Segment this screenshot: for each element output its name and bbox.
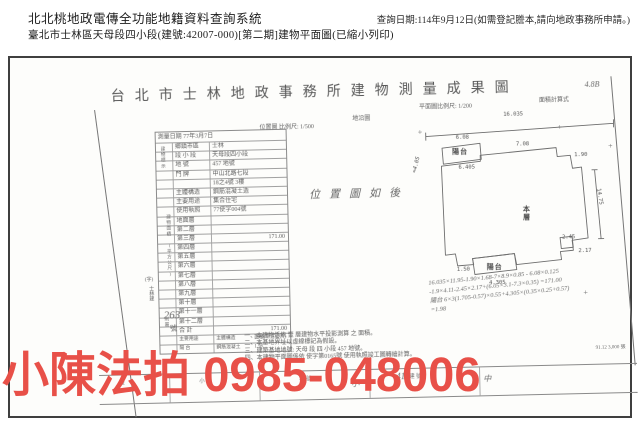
dim-bottom-left: 1.50: [457, 267, 470, 273]
receipt-suffix: 號: [170, 323, 177, 333]
plan-center-label: 本層: [521, 205, 532, 229]
sheet-note: 地沿圖: [352, 113, 370, 122]
registration-mark: +: [608, 141, 613, 150]
handwritten-corner-note: 4.8B: [585, 80, 600, 89]
receipt-office: 士林建: [147, 286, 155, 312]
balcony-top-label: 陽台: [452, 147, 468, 157]
receipt-prefix: (字): [145, 276, 154, 283]
receipt-number: 263: [164, 309, 181, 321]
plan-scale: 平面圖比例尺: 1/200: [419, 101, 472, 111]
dim-top-right: 1.90: [574, 152, 587, 158]
dim-balcony-top: 6.08: [456, 135, 469, 141]
dim-balcony-top-inner: 6.405: [458, 164, 475, 170]
balcony-bottom-label: 陽台: [487, 262, 503, 272]
plan-top-dimension-line: [425, 119, 613, 140]
system-title: 北北桃地政電傳全功能地籍資料查詢系統: [28, 8, 262, 27]
print-code: 91.12 3,000 張: [595, 343, 625, 351]
subject-line: 臺北市士林區天母段四小段(建號:42007-000)[第二期]建物平面圖(已縮小…: [28, 27, 394, 42]
area-calc-label: 面積計算式: [539, 94, 569, 104]
dim-top-mid: 7.08: [516, 141, 529, 147]
dim-top: 16.035: [503, 111, 523, 117]
group-label-building: 建物標示: [159, 146, 168, 206]
registration-mark: +: [418, 128, 423, 137]
location-note: 位置圖如後: [309, 184, 409, 202]
registration-mark: +: [557, 122, 562, 131]
group-label-area: 建物面積 (平方公尺): [158, 214, 174, 306]
dim-notch-b: 2.17: [578, 248, 591, 254]
query-date: 查詢日期:114年9月12日(如需登記謄本,請向地政事務所申請。): [377, 12, 630, 26]
dim-notch-a: 2.45: [562, 234, 575, 240]
auction-watermark: 小陳法拍 0985-048006: [2, 352, 627, 400]
